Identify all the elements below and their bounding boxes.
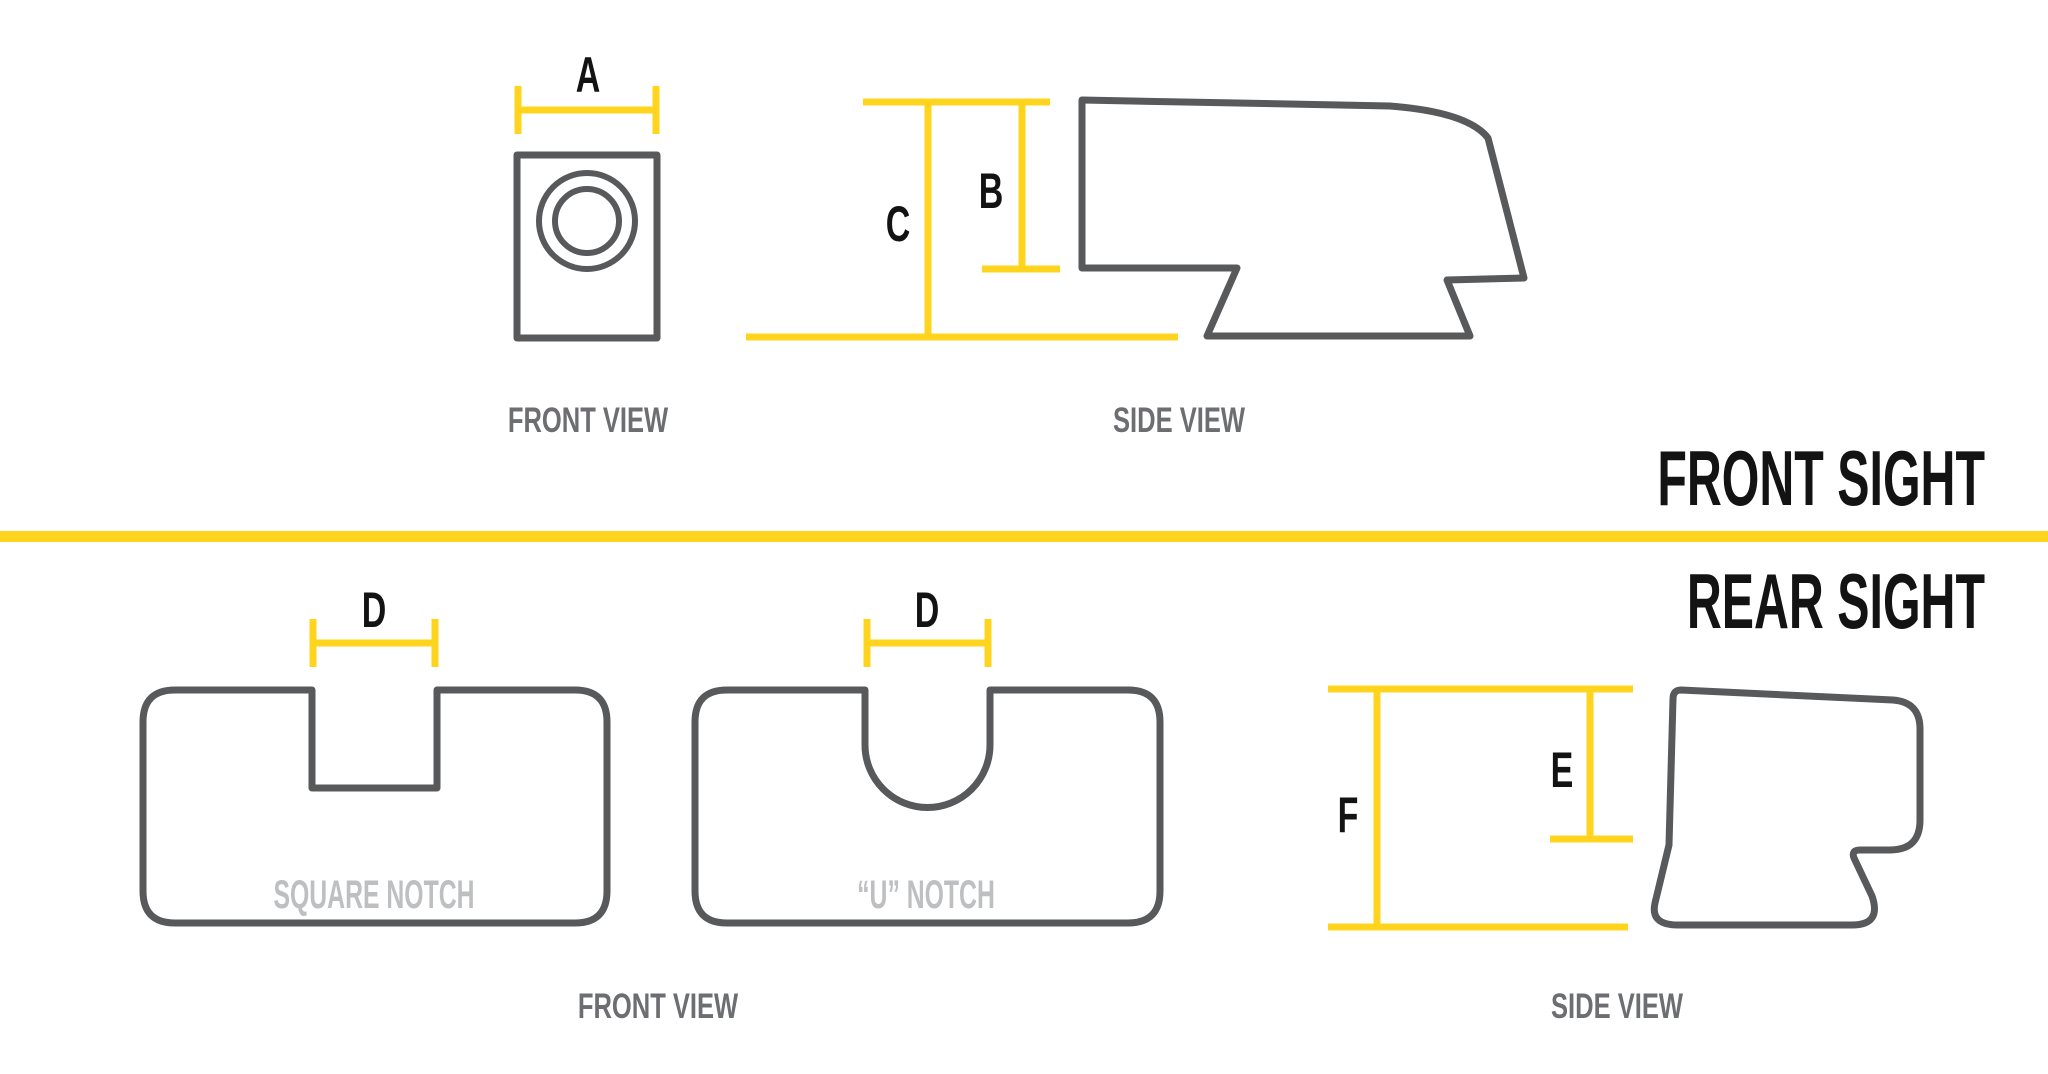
- dimension-a: A: [518, 48, 656, 134]
- section-divider: [0, 531, 2048, 542]
- dimension-e-label: E: [1551, 743, 1574, 799]
- u-notch-caption: “U” NOTCH: [857, 873, 995, 917]
- front-sight-front-view-drawing: [517, 155, 657, 338]
- dimension-e: E: [1550, 689, 1633, 839]
- sight-dot-inner-ring-icon: [555, 189, 619, 253]
- rear-sight-section: REAR SIGHT D SQUARE NOTCH D “U” NOTCH F: [143, 557, 1985, 1026]
- rear-sight-title: REAR SIGHT: [1687, 557, 1985, 645]
- dimension-d-label: D: [362, 583, 387, 639]
- dimension-d-square: D: [313, 583, 435, 667]
- dimension-b-label: B: [979, 164, 1004, 220]
- front-sight-side-view-label: SIDE VIEW: [1113, 401, 1245, 440]
- dimension-d-u: D: [867, 583, 988, 667]
- dimension-c: C: [746, 102, 1178, 337]
- front-sight-front-view-label: FRONT VIEW: [508, 401, 668, 440]
- front-sight-profile-outline: [1082, 100, 1524, 336]
- rear-sight-u-notch: D “U” NOTCH: [695, 583, 1160, 923]
- front-sight-title: FRONT SIGHT: [1657, 434, 1985, 522]
- dimension-d-label: D: [915, 583, 940, 639]
- square-notch-caption: SQUARE NOTCH: [273, 873, 474, 917]
- sight-dimensions-page: A FRONT VIEW C B SIDE VIEW FRONT SIGHT: [0, 0, 2048, 1074]
- rear-sight-square-notch: D SQUARE NOTCH: [143, 583, 607, 923]
- rear-sight-side-view-label: SIDE VIEW: [1551, 987, 1683, 1026]
- dimension-c-label: C: [886, 197, 911, 253]
- front-sight-section: A FRONT VIEW C B SIDE VIEW FRONT SIGHT: [508, 48, 1985, 522]
- sight-dimensions-diagram: A FRONT VIEW C B SIDE VIEW FRONT SIGHT: [0, 0, 2048, 1074]
- rear-sight-front-view-label: FRONT VIEW: [578, 987, 738, 1026]
- dimension-b: B: [979, 102, 1060, 269]
- rear-sight-profile-outline: [1654, 690, 1920, 925]
- front-sight-post-outline: [517, 155, 657, 338]
- dimension-a-label: A: [576, 48, 601, 104]
- dimension-f-label: F: [1338, 788, 1359, 844]
